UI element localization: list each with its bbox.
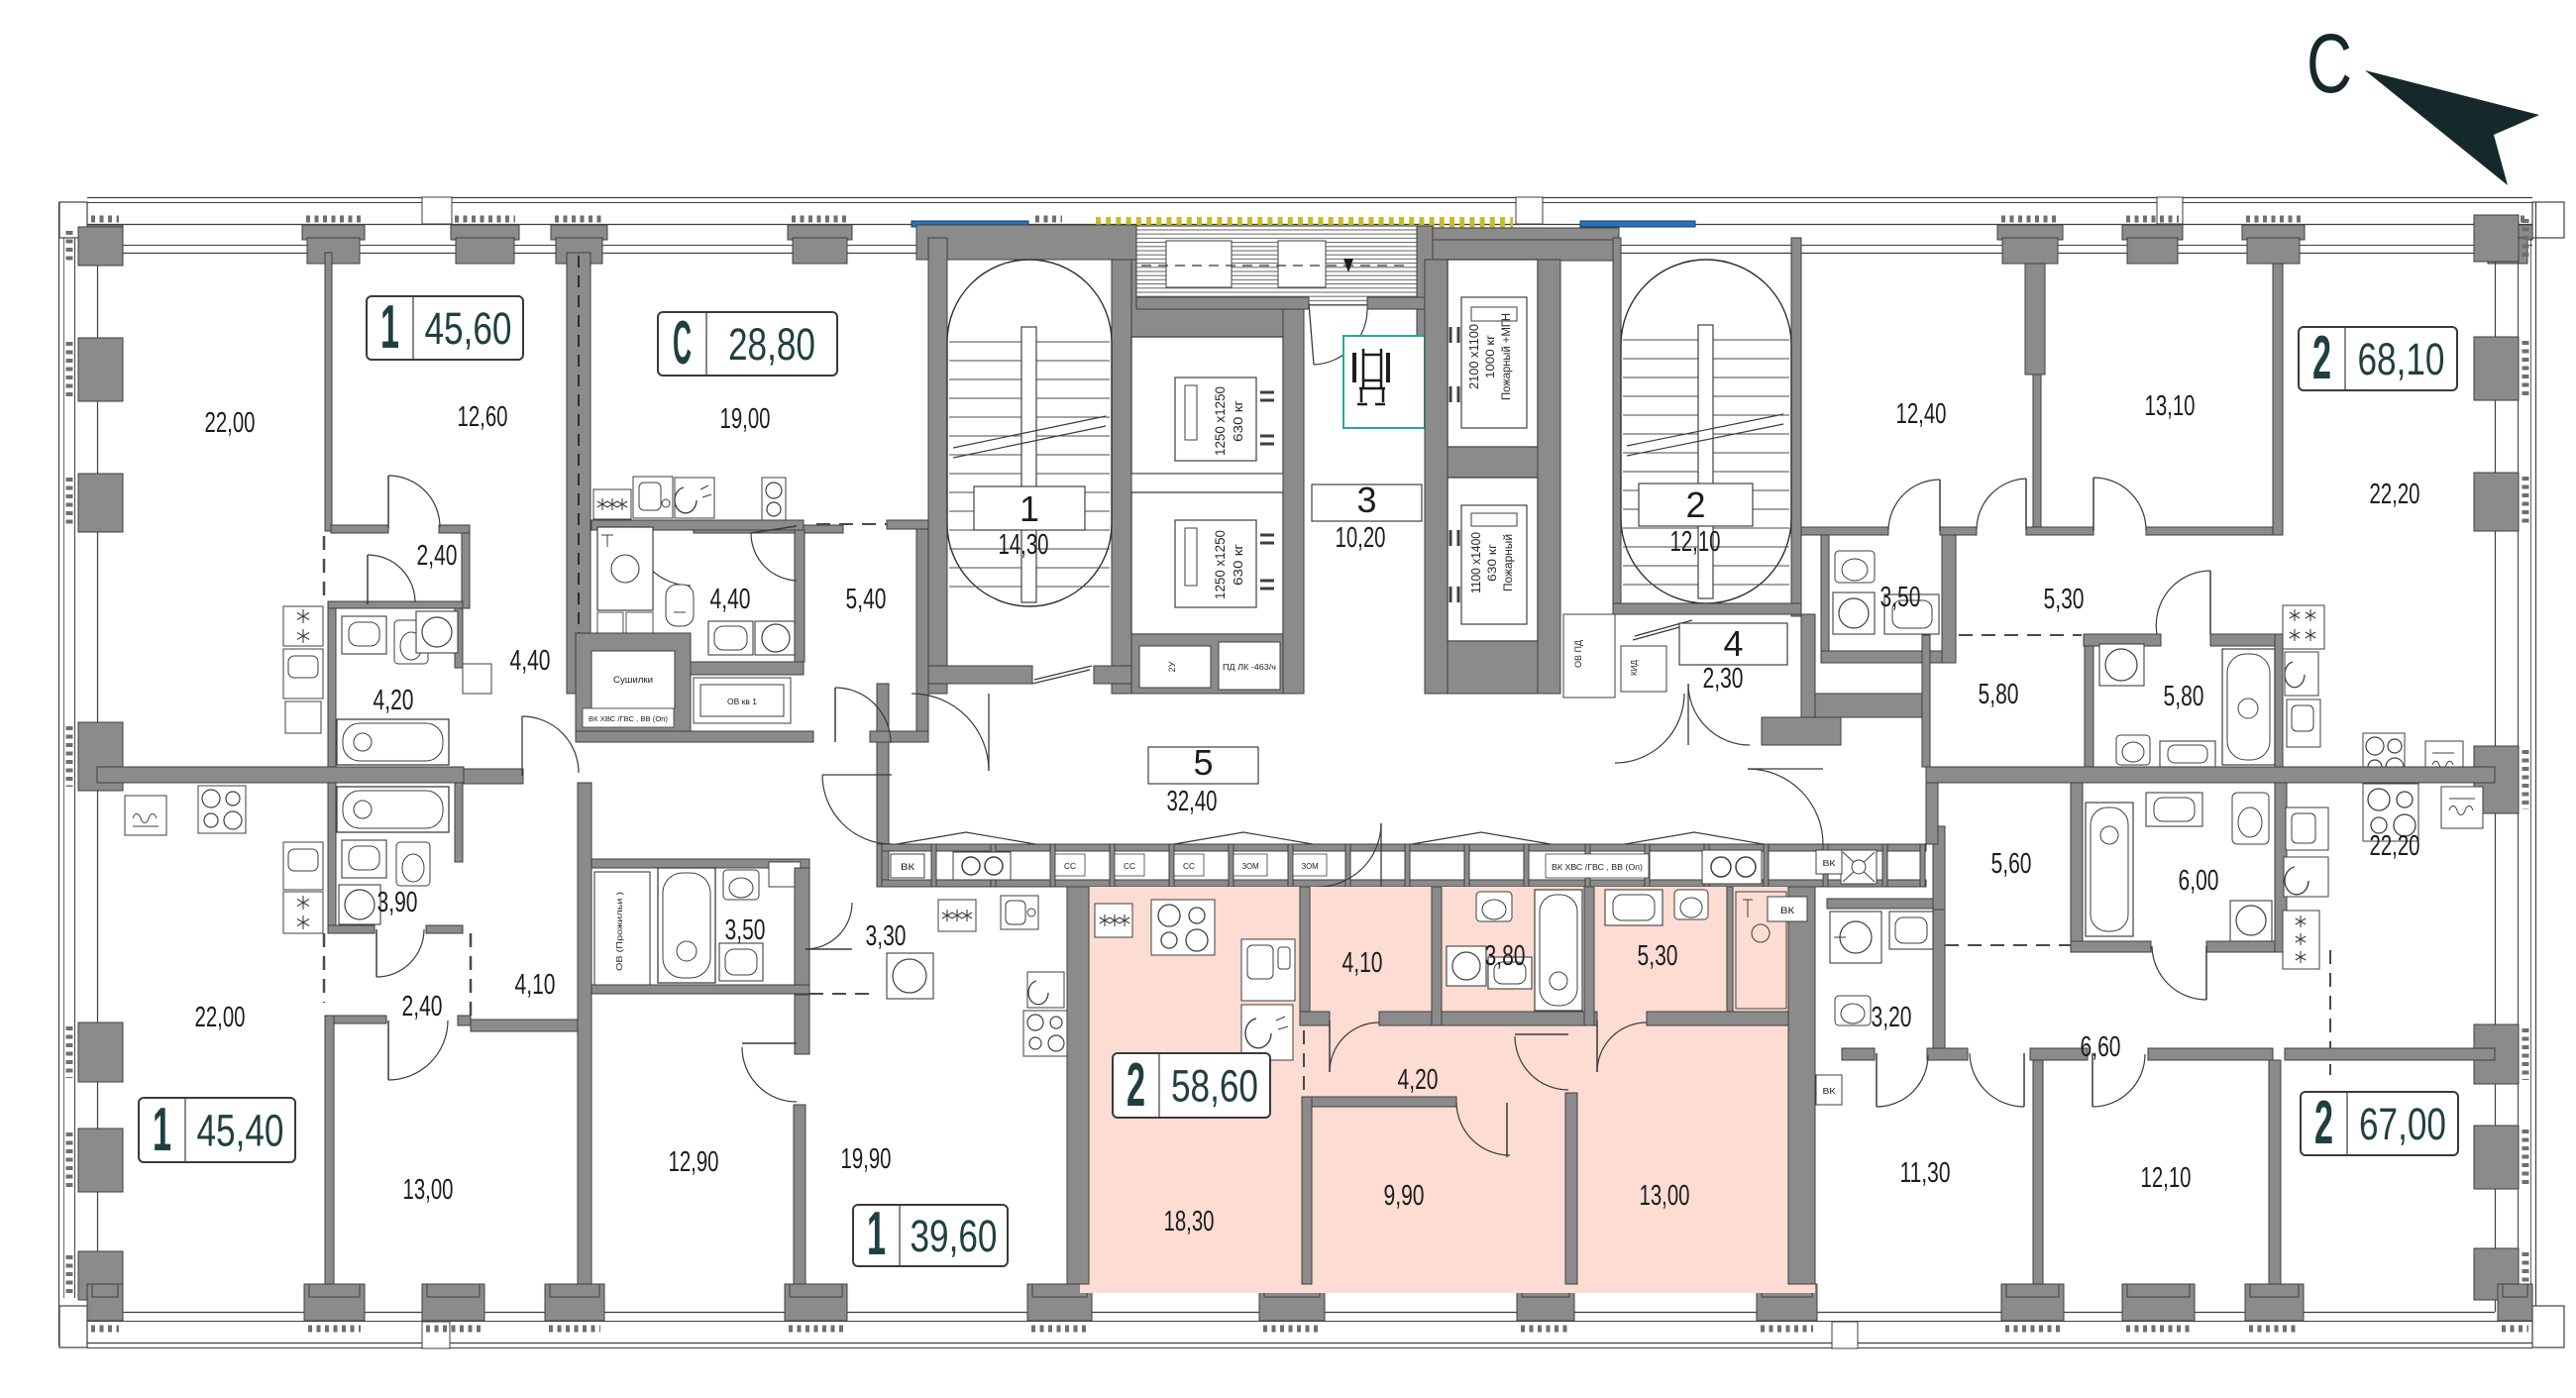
svg-text:11,30: 11,30: [1900, 1157, 1951, 1189]
svg-text:1: 1: [153, 1096, 171, 1164]
svg-text:2,30: 2,30: [1703, 663, 1744, 695]
svg-text:12,90: 12,90: [669, 1146, 719, 1178]
svg-text:45,40: 45,40: [197, 1106, 284, 1156]
svg-text:19,00: 19,00: [720, 403, 771, 435]
svg-text:13,10: 13,10: [2145, 390, 2196, 422]
svg-text:3: 3: [1356, 480, 1376, 520]
svg-text:4,20: 4,20: [374, 685, 414, 716]
svg-text:СС: СС: [1064, 862, 1076, 871]
svg-text:5,30: 5,30: [2044, 584, 2085, 615]
svg-text:68,10: 68,10: [2358, 334, 2445, 384]
svg-text:СС: СС: [1183, 862, 1195, 871]
svg-text:Пожарный +МГН: Пожарный +МГН: [1499, 313, 1513, 400]
svg-text:2,40: 2,40: [417, 540, 458, 572]
svg-text:1: 1: [1020, 488, 1039, 529]
svg-text:32,40: 32,40: [1167, 786, 1218, 817]
svg-text:ЗОМ: ЗОМ: [1242, 862, 1259, 871]
svg-text:СС: СС: [1124, 862, 1135, 871]
svg-text:4,10: 4,10: [1342, 947, 1383, 979]
svg-text:2: 2: [1127, 1051, 1145, 1120]
svg-text:12,10: 12,10: [1670, 526, 1721, 558]
svg-text:630 кг: 630 кг: [1231, 544, 1245, 586]
svg-text:4: 4: [1723, 623, 1743, 664]
svg-text:630 кг: 630 кг: [1485, 543, 1499, 582]
svg-text:5: 5: [1193, 742, 1213, 783]
svg-text:22,00: 22,00: [205, 407, 256, 439]
svg-text:630 кг: 630 кг: [1231, 400, 1245, 442]
svg-text:1000 кг: 1000 кг: [1483, 334, 1497, 378]
svg-text:1250 х1250: 1250 х1250: [1212, 386, 1228, 456]
svg-text:3,50: 3,50: [725, 914, 766, 946]
svg-text:9,90: 9,90: [1384, 1180, 1425, 1212]
svg-text:ПД ЛК -463/ч: ПД ЛК -463/ч: [1223, 663, 1276, 672]
svg-text:4,10: 4,10: [515, 969, 556, 1001]
svg-text:3,30: 3,30: [866, 920, 907, 952]
svg-text:5,30: 5,30: [1638, 940, 1678, 972]
svg-text:2: 2: [2314, 1089, 2333, 1157]
svg-text:1: 1: [867, 1200, 886, 1268]
svg-text:67,00: 67,00: [2359, 1099, 2446, 1149]
svg-text:4,40: 4,40: [710, 584, 751, 615]
svg-text:2: 2: [2312, 324, 2331, 392]
svg-text:3,80: 3,80: [1485, 940, 1526, 972]
svg-text:19,90: 19,90: [841, 1143, 892, 1175]
svg-text:12,60: 12,60: [458, 401, 508, 433]
svg-text:28,80: 28,80: [728, 319, 815, 370]
svg-text:C: C: [2307, 17, 2352, 110]
svg-text:Сушилки: Сушилки: [613, 675, 653, 685]
svg-text:5,80: 5,80: [2164, 681, 2204, 712]
svg-text:ВК ХВС /ГВС , ВВ (Оп): ВК ХВС /ГВС , ВВ (Оп): [589, 714, 669, 723]
svg-text:5,60: 5,60: [1991, 848, 2032, 880]
svg-text:1: 1: [380, 293, 399, 362]
svg-text:10,20: 10,20: [1336, 522, 1386, 554]
svg-text:5,40: 5,40: [846, 584, 887, 615]
svg-text:12,10: 12,10: [2141, 1162, 2192, 1194]
svg-text:18,30: 18,30: [1164, 1206, 1215, 1237]
svg-text:6,00: 6,00: [2179, 865, 2219, 897]
svg-text:ВК ХВС /ГВС , ВВ (Оп): ВК ХВС /ГВС , ВВ (Оп): [1552, 863, 1643, 872]
svg-text:ВК: ВК: [1780, 906, 1795, 915]
svg-text:39,60: 39,60: [911, 1211, 998, 1261]
svg-text:13,00: 13,00: [403, 1174, 454, 1206]
svg-text:ОВ ПД: ОВ ПД: [1573, 640, 1583, 668]
svg-text:ЗОМ: ЗОМ: [1302, 862, 1319, 871]
svg-text:ОВ (Прожильи ): ОВ (Прожильи ): [615, 892, 624, 971]
svg-text:1100 х1400: 1100 х1400: [1468, 532, 1483, 593]
svg-text:2100 х1100: 2100 х1100: [1466, 324, 1481, 389]
svg-text:4,40: 4,40: [510, 645, 551, 677]
svg-text:45,60: 45,60: [425, 303, 512, 354]
svg-text:3,90: 3,90: [377, 887, 418, 918]
svg-text:ОВ кв 1: ОВ кв 1: [727, 698, 758, 706]
svg-text:14,30: 14,30: [999, 529, 1049, 561]
svg-text:6,60: 6,60: [2081, 1031, 2121, 1063]
svg-text:1250 х1250: 1250 х1250: [1212, 530, 1228, 599]
svg-text:С: С: [673, 309, 692, 377]
svg-text:2,40: 2,40: [402, 991, 443, 1022]
svg-text:22,20: 22,20: [2370, 479, 2420, 510]
svg-text:22,00: 22,00: [195, 1002, 246, 1033]
svg-text:4,20: 4,20: [1398, 1064, 1439, 1096]
svg-text:ВК: ВК: [901, 862, 915, 872]
svg-text:КИД: КИД: [1630, 660, 1639, 676]
svg-text:5,80: 5,80: [1979, 679, 2019, 710]
svg-text:2У: 2У: [1167, 661, 1177, 672]
svg-text:2: 2: [1685, 484, 1705, 525]
svg-text:22,20: 22,20: [2370, 830, 2420, 862]
svg-text:13,00: 13,00: [1640, 1180, 1690, 1212]
svg-text:ВК: ВК: [1823, 1087, 1836, 1096]
svg-text:58,60: 58,60: [1171, 1061, 1258, 1112]
svg-text:12,40: 12,40: [1896, 398, 1947, 430]
svg-text:3,50: 3,50: [1880, 582, 1921, 613]
svg-text:Пожарный: Пожарный: [1501, 534, 1515, 591]
svg-text:ВК: ВК: [1823, 859, 1836, 868]
svg-text:3,20: 3,20: [1872, 1002, 1912, 1033]
